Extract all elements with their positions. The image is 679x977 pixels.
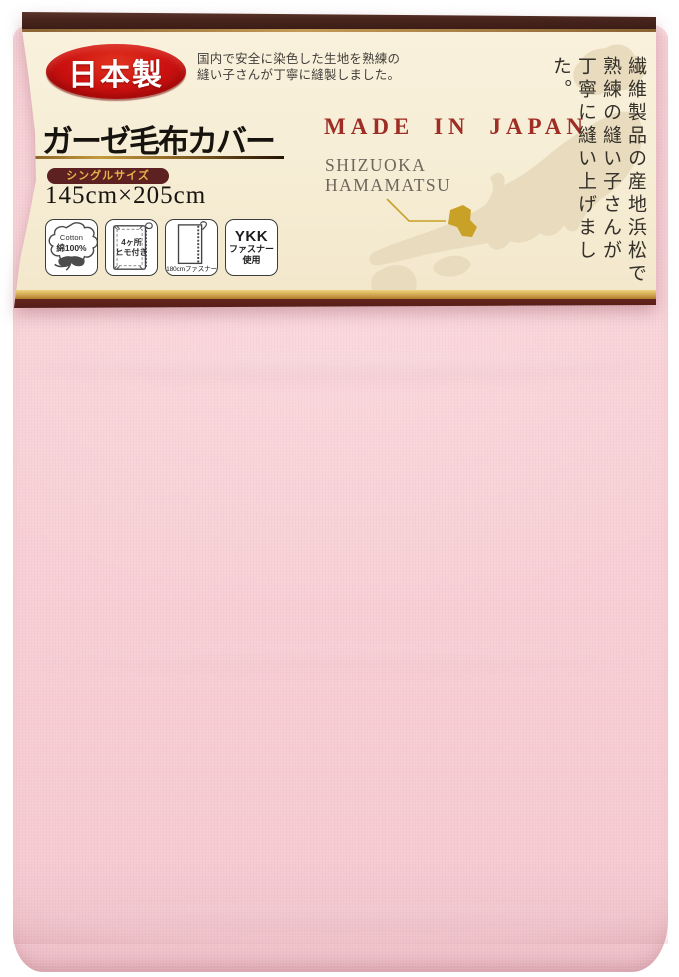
fabric-fold xyxy=(26,355,655,381)
fastener-caption: 180cmファスナー xyxy=(166,263,217,273)
feature-cotton: Cotton 綿100% xyxy=(45,219,98,276)
label-body: 日本製 国内で安全に染色した生地を熟練の 縫い子さんが丁寧に縫製しました。 ガー… xyxy=(14,32,656,290)
product-photo: 日本製 国内で安全に染色した生地を熟練の 縫い子さんが丁寧に縫製しました。 ガー… xyxy=(0,0,679,977)
origin-region: SHIZUOKA HAMAMATSU xyxy=(325,156,451,195)
dimensions-text: 145cm×205cm xyxy=(45,182,206,210)
badge-label: 日本製 xyxy=(68,50,164,94)
vertical-copy: 繊維製品の産地浜松で 熟練の縫い子さんが 丁寧に縫い上げました。 xyxy=(548,56,648,290)
title-underline xyxy=(20,156,284,159)
made-in-japan-oval-badge: 日本製 xyxy=(46,44,186,99)
feature-ties: 4ヶ所 ヒモ付き xyxy=(105,219,158,276)
craft-description: 国内で安全に染色した生地を熟練の 縫い子さんが丁寧に縫製しました。 xyxy=(197,52,400,83)
map-pointer-line xyxy=(387,199,446,221)
gold-accent-band xyxy=(14,290,656,299)
feature-box-row: Cotton 綿100% 4ヶ所 xyxy=(45,219,278,276)
feature-fastener-length: 180cmファスナー xyxy=(165,219,218,276)
label-bottom-bar xyxy=(14,299,656,308)
label-top-bar xyxy=(14,12,656,29)
packaging-band-label: 日本製 国内で安全に染色した生地を熟練の 縫い子さんが丁寧に縫製しました。 ガー… xyxy=(14,12,656,308)
fabric-fold xyxy=(26,645,655,671)
fabric-fold xyxy=(26,905,655,931)
product-title: ガーゼ毛布カバー xyxy=(42,116,274,161)
feature-ykk: YKK ファスナー 使用 xyxy=(225,219,278,276)
